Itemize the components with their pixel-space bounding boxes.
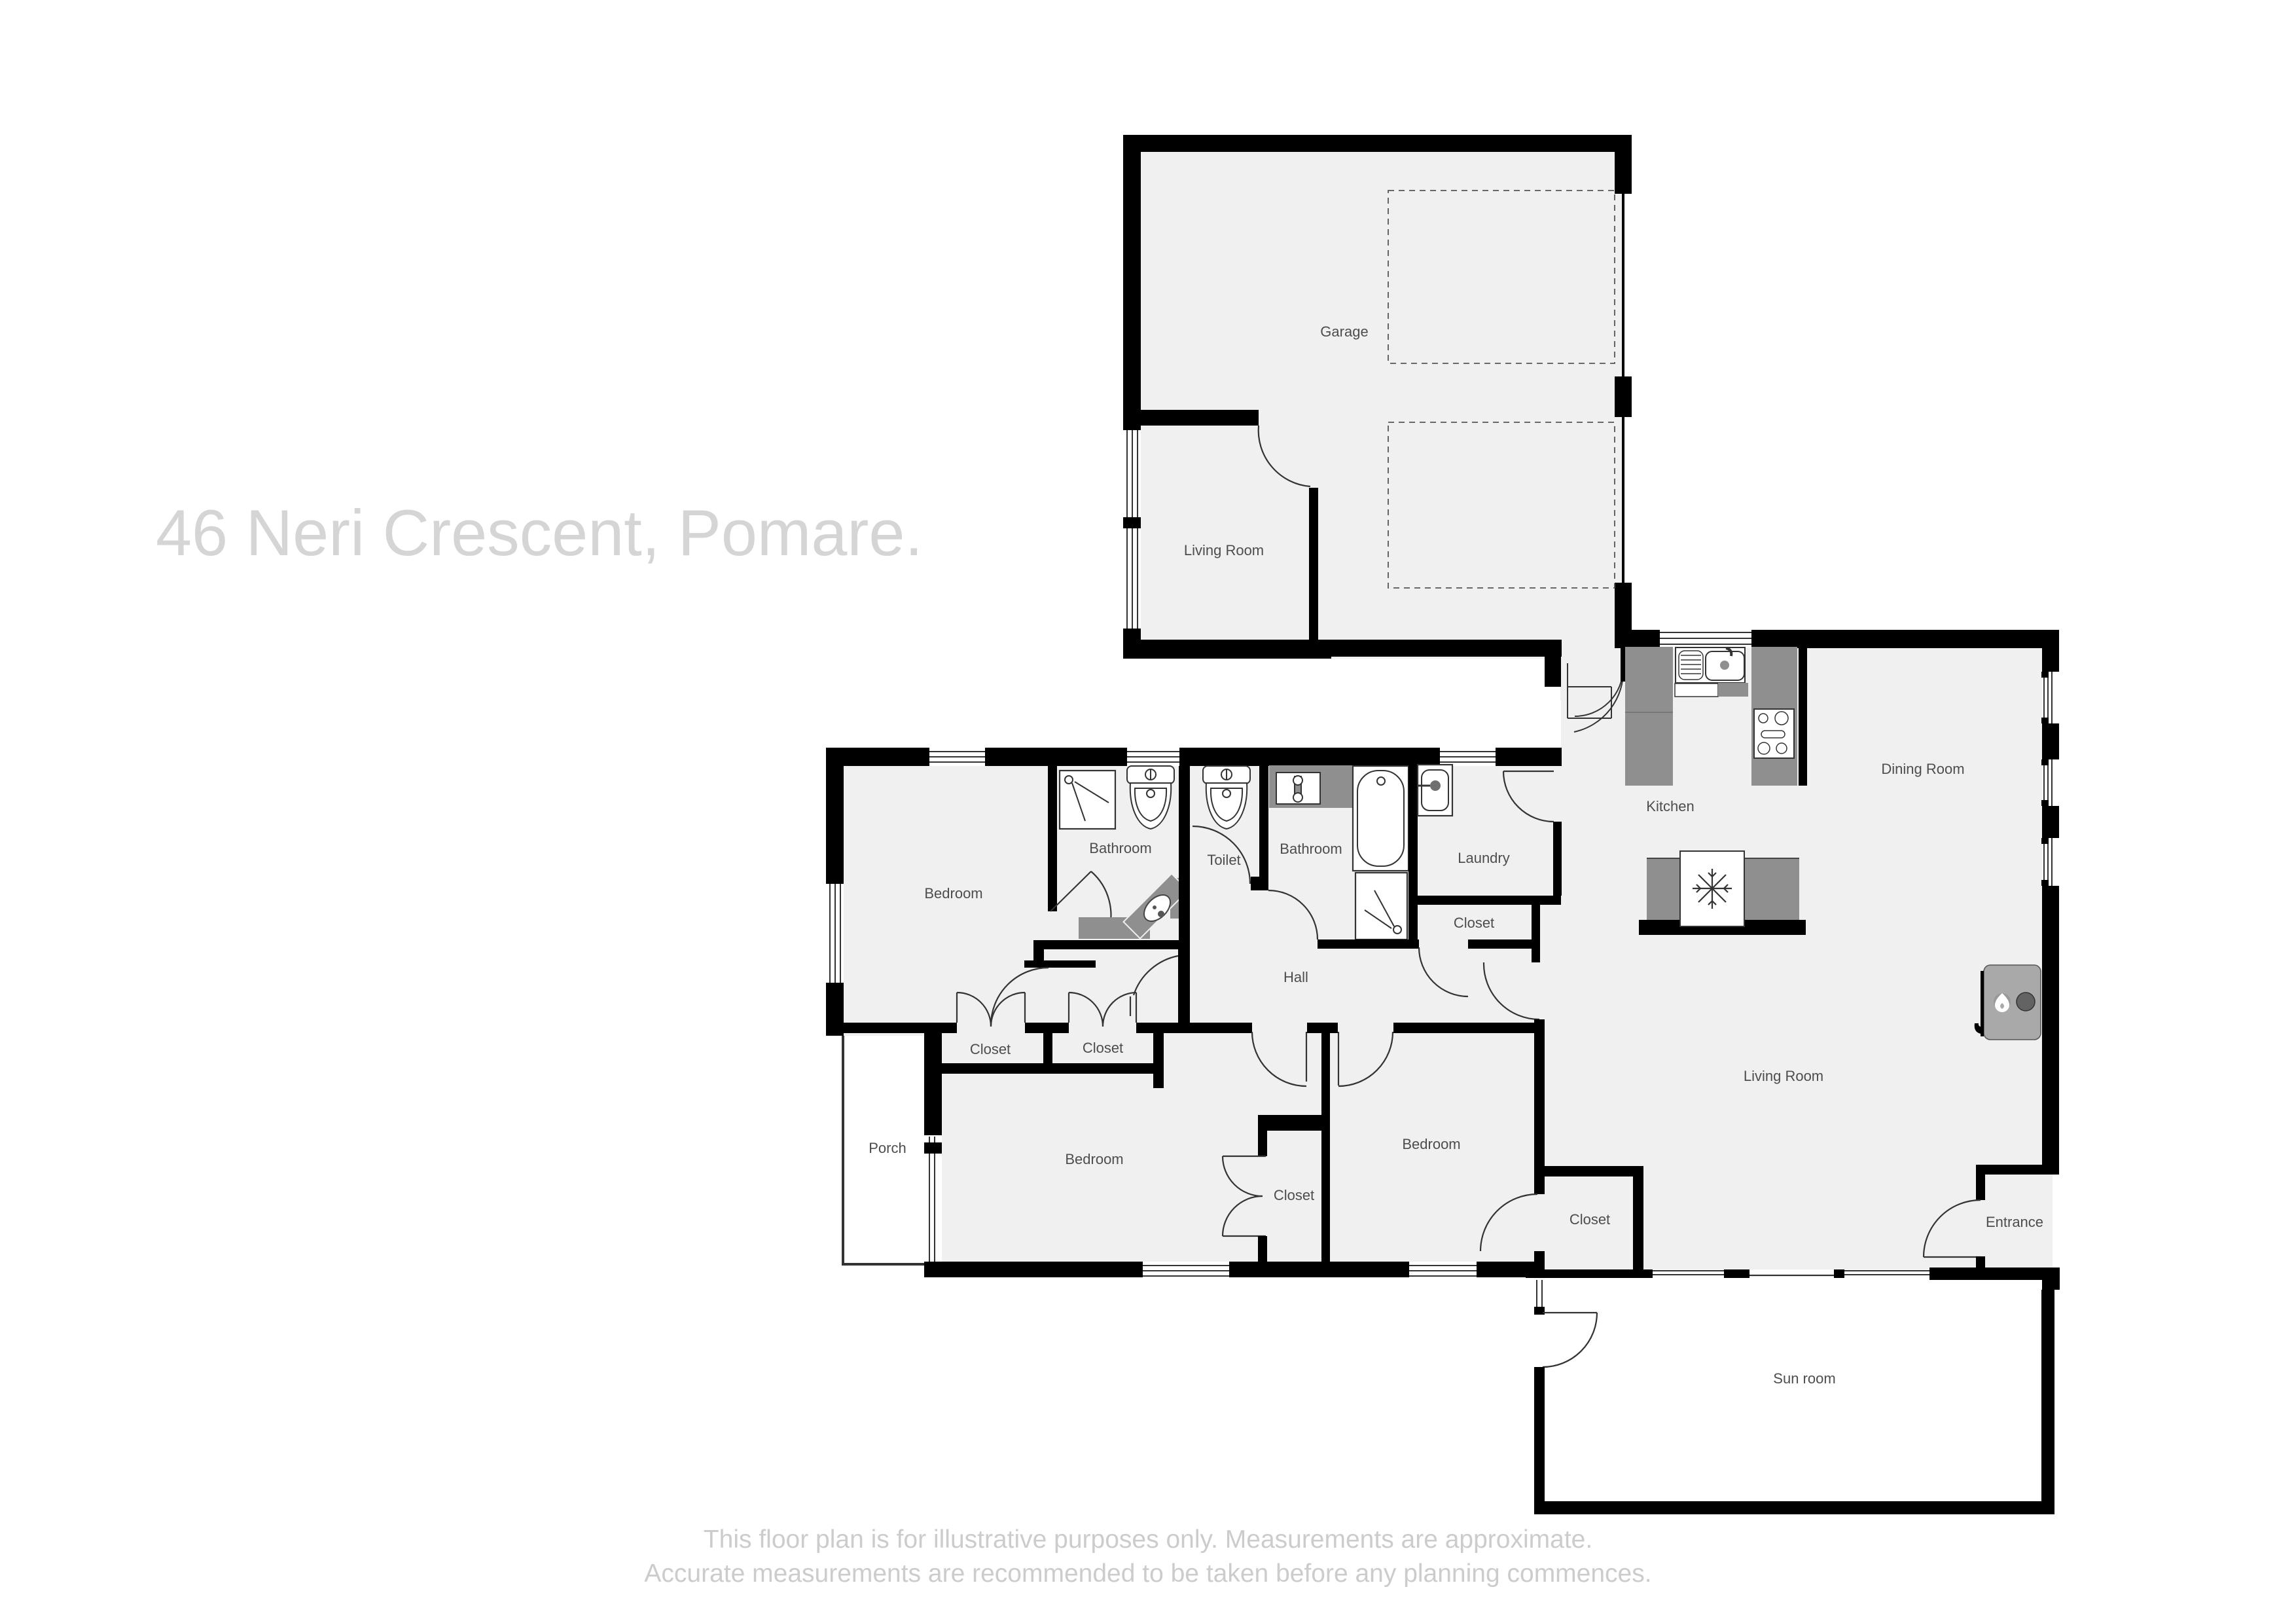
svg-text:This floor plan is for illustr: This floor plan is for illustrative purp… <box>704 1525 1592 1554</box>
svg-text:Kitchen: Kitchen <box>1646 798 1694 814</box>
svg-text:Closet: Closet <box>1274 1187 1314 1203</box>
svg-text:Garage: Garage <box>1320 323 1368 340</box>
svg-text:Hall: Hall <box>1283 969 1308 985</box>
svg-text:Closet: Closet <box>1454 915 1494 931</box>
svg-text:Closet: Closet <box>970 1041 1011 1057</box>
svg-text:Living Room: Living Room <box>1744 1068 1823 1084</box>
svg-text:Closet: Closet <box>1570 1211 1610 1228</box>
svg-text:Sun room: Sun room <box>1773 1370 1835 1387</box>
svg-text:Bedroom: Bedroom <box>1402 1136 1460 1152</box>
svg-text:Living Room: Living Room <box>1184 542 1264 558</box>
svg-text:Bedroom: Bedroom <box>924 885 982 902</box>
svg-text:Bathroom: Bathroom <box>1280 841 1342 857</box>
svg-text:Entrance: Entrance <box>1986 1214 2043 1230</box>
svg-text:Closet: Closet <box>1083 1040 1123 1056</box>
svg-text:Dining Room: Dining Room <box>1881 761 1964 777</box>
svg-text:Laundry: Laundry <box>1458 850 1510 866</box>
svg-text:46 Neri Crescent, Pomare.: 46 Neri Crescent, Pomare. <box>156 496 923 569</box>
svg-text:Bedroom: Bedroom <box>1065 1151 1123 1167</box>
svg-text:Accurate measurements are reco: Accurate measurements are recommended to… <box>644 1559 1651 1588</box>
svg-text:Bathroom: Bathroom <box>1089 840 1151 856</box>
svg-text:Porch: Porch <box>869 1140 906 1156</box>
svg-text:Toilet: Toilet <box>1207 852 1240 868</box>
